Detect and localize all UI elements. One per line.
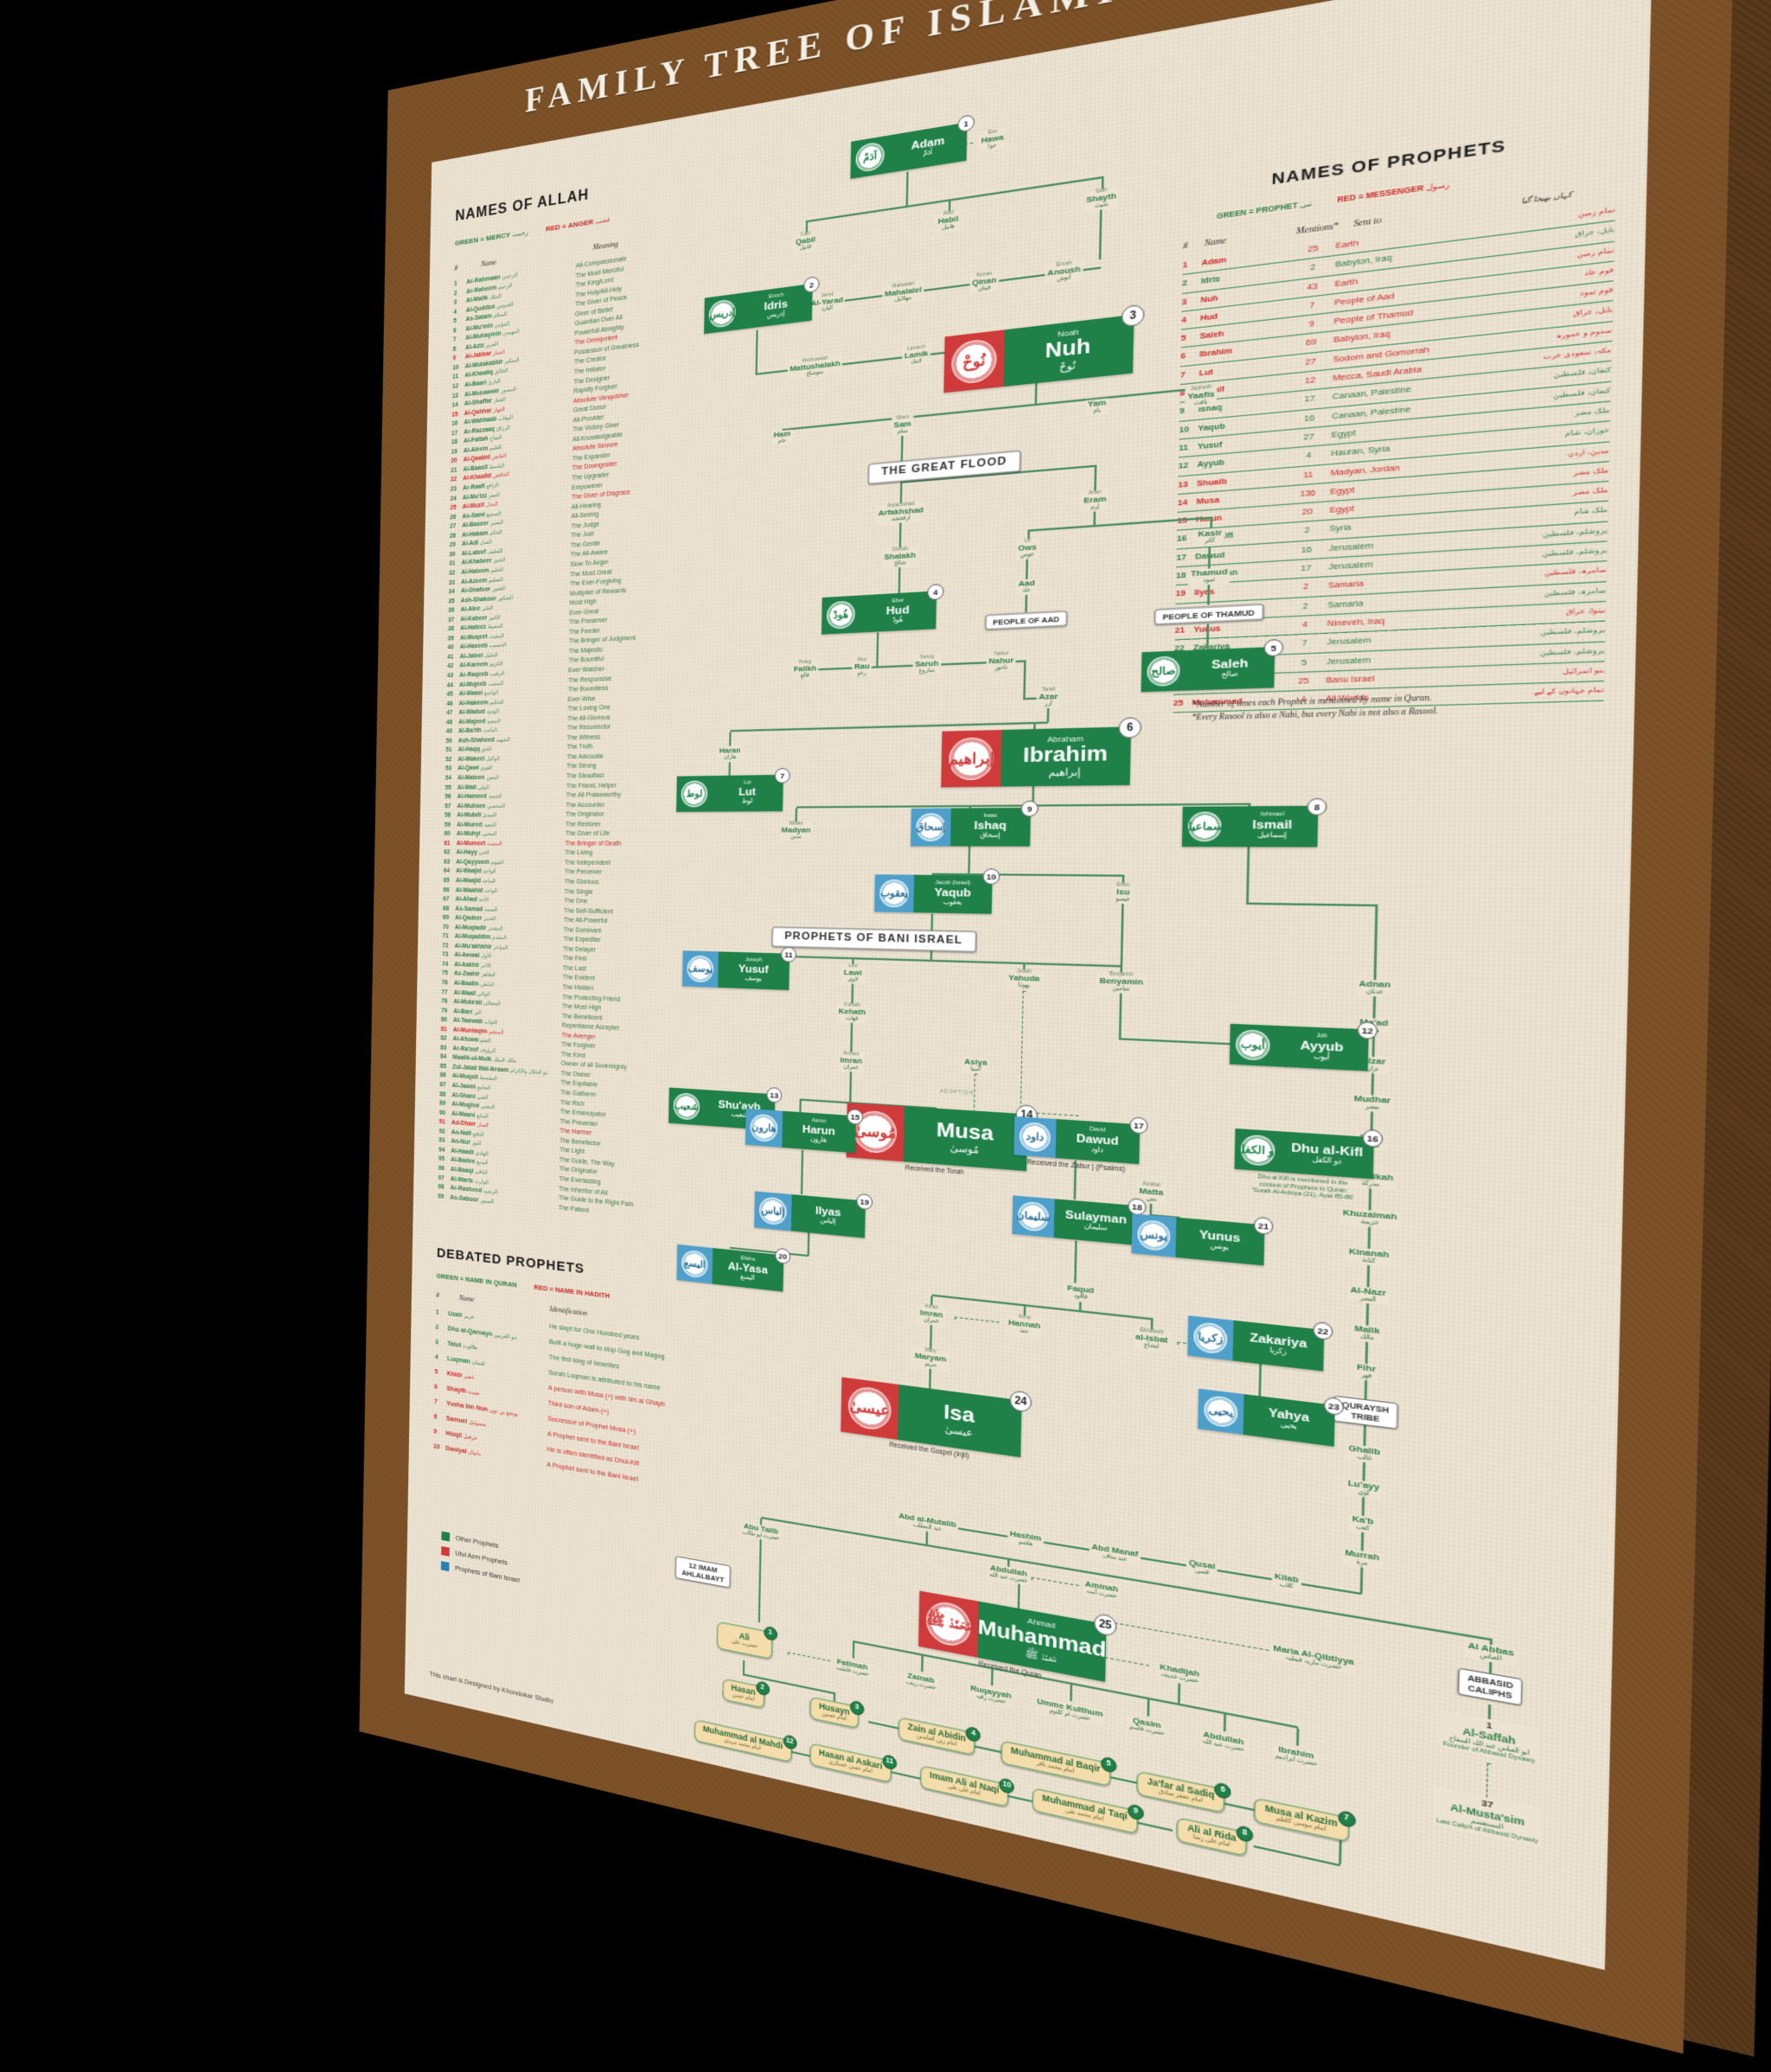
ornament-tile-icon: يعقوب <box>874 874 914 912</box>
names-of-prophets-legend: GREEN = PROPHET نبی RED = MESSENGER رسول <box>1217 181 1450 221</box>
person-malik: Malikمالك <box>1352 1324 1383 1343</box>
debated-col-ident: Identification <box>549 1305 587 1318</box>
ornament-tile-icon: يحيى <box>1198 1389 1244 1435</box>
tree-connector <box>876 633 879 667</box>
debated-prophets-heading: DEBATED PROPHETS <box>437 1245 585 1277</box>
designer-credit: This chart is Designed by Khondokar Stud… <box>429 1669 553 1704</box>
banner-abbasid: ABBASID CALIPHS <box>1458 1667 1523 1705</box>
tree-connector <box>1104 1657 1149 1668</box>
prophet-node-musa: مُوسیٰMusaمُوسیٰ14 <box>847 1103 1028 1171</box>
tree-connector <box>1208 547 1211 569</box>
tree-connector <box>1047 707 1050 723</box>
tree-connector <box>955 1317 1000 1325</box>
person-eram: AramEramإرم <box>1081 489 1109 512</box>
tree-connector <box>974 1073 978 1113</box>
names-of-allah-heading: NAMES OF ALLAH <box>455 187 589 225</box>
ornament-tile-icon: أيوب <box>1230 1024 1276 1066</box>
person-murrah: Murrahمرة <box>1342 1548 1382 1570</box>
person-kilab: Kilabكلاب <box>1272 1571 1301 1592</box>
tree-connector <box>1099 209 1103 259</box>
person-alisbat: Elizabethal-Isbatایشاع <box>1133 1327 1170 1353</box>
person-abdullah3: Abdullahحضرت عبد اللہ <box>1199 1730 1247 1755</box>
ornament-tile-icon: مُحَمَّدْ ﷺ <box>918 1591 979 1658</box>
prophet-number-badge: 8 <box>1307 798 1327 815</box>
tree-connector <box>898 566 901 593</box>
tree-connector <box>1023 662 1026 700</box>
tree-connector <box>1024 697 1037 700</box>
person-khadijah: Khadijahحضرت خدیجہ <box>1157 1662 1202 1685</box>
prophet-node-isa: عیسیٰIsaعیسیٰ24 <box>841 1377 1021 1457</box>
tree-connector <box>808 1232 810 1256</box>
tree-connector <box>1094 464 1096 493</box>
prophets-col-name: Name <box>1204 235 1226 247</box>
person-arfakhshad: ArpachshadArfakhshadأرفخشد <box>876 501 926 524</box>
color-legend: Other ProphetsUlul Azm ProphetsProphets … <box>441 1528 521 1589</box>
prophets-col-sent: Sent to <box>1353 215 1382 229</box>
tree-connector <box>1018 1583 1020 1609</box>
ornament-tile-icon: اليسع <box>677 1244 713 1284</box>
ornament-tile-icon: هُودْ <box>822 595 860 634</box>
tree-connector <box>1224 1714 1226 1731</box>
person-nahur: NahorNahurناحور <box>987 651 1016 673</box>
person-yaafis: JaphethYaafisيافث <box>1185 385 1218 409</box>
tree-connector <box>850 1020 853 1053</box>
banner-ahlalbayt: 12 IMAM AHLALBAYT <box>675 1556 732 1589</box>
person-kinanah: Kinanahكنانة <box>1346 1247 1392 1267</box>
person-sam: ShemSamسام <box>892 415 913 437</box>
ornament-tile-icon: شعيب <box>668 1088 705 1126</box>
imam-number-badge: 4 <box>966 1726 981 1743</box>
prophets-col-num: # <box>1183 240 1188 251</box>
prophet-number-badge: 7 <box>775 768 790 783</box>
tree-connector <box>991 1669 994 1685</box>
prophet-node-dawud: داودDavidDawudداود17 <box>1013 1116 1140 1164</box>
person-qusai: Qusaiقصي <box>1186 1557 1218 1578</box>
canvas-frame: FAMILY TREE OF ISLAMIC PROPHETS NAMES OF… <box>359 0 1736 2054</box>
ornament-tile-icon: آدَمْ <box>850 135 890 179</box>
person-ruqayyah: Ruqayyahحضرت رقیہ <box>968 1684 1013 1707</box>
person-thamud: Thamudثمود <box>1188 567 1231 585</box>
legend-swatch <box>441 1561 450 1571</box>
prophet-node-zakariya: زكرياZakariyaزكريا22 <box>1187 1315 1324 1371</box>
prophet-number-badge: 17 <box>1129 1116 1148 1135</box>
ornament-tile-icon: إسحاق <box>911 809 951 847</box>
prophet-node-dhulkifl: ذو الكفلDhu al-Kiflذو الكفل16 <box>1234 1129 1373 1180</box>
imam-number-badge: 12 <box>783 1734 796 1750</box>
person-alyarad: JaredAl-Yaradاليارد <box>809 291 845 315</box>
prophet-number-badge: 10 <box>982 868 1000 885</box>
banner-baniisrael: PROPHETS OF BANI ISRAEL <box>771 927 976 953</box>
prophets-col-mentions: Mentions* <box>1296 221 1339 236</box>
note-musa: Received the Torah <box>905 1165 964 1176</box>
product-photo-background: FAMILY TREE OF ISLAMIC PROPHETS NAMES OF… <box>0 0 1771 1771</box>
prophet-number-badge: 3 <box>1122 304 1145 327</box>
person-isu: EsauIsuعيسو <box>1113 883 1133 904</box>
imam-rida: Ali al Ridaامام علی رضا8 <box>1176 1817 1247 1858</box>
imam-number-badge: 2 <box>756 1680 770 1697</box>
ornament-tile-icon: زكريا <box>1187 1315 1233 1360</box>
prophet-node-ayyub: أيوبJobAyyubأيوب12 <box>1230 1024 1369 1071</box>
person-rau: ReuRauرعو <box>852 657 872 678</box>
tree-connector <box>1026 558 1028 579</box>
tree-connector <box>834 1694 835 1701</box>
tree-connector <box>1258 1364 1262 1396</box>
tree-connector <box>761 1517 1493 1641</box>
person-ows: UzOwsعوص <box>1016 538 1039 560</box>
person-alnazr: Al-Nazrالنضر <box>1347 1285 1389 1305</box>
person-abdmanaf: Abd Manafعبد مناف <box>1090 1542 1141 1565</box>
person-kasir: Kasirكاثر <box>1195 528 1224 546</box>
person-maryam: MaryMaryamمريم <box>912 1346 949 1371</box>
person-ham: Hamحام <box>771 430 792 446</box>
person-qasim: Qasimحضرت قاسم <box>1127 1715 1167 1738</box>
tree-connector <box>1020 991 1026 1114</box>
ornament-tile-icon: لوط <box>676 776 713 812</box>
person-lamik: LamechLamikلامك <box>902 344 930 368</box>
person-hannah: AnneHannahحنة <box>1006 1314 1043 1338</box>
tree-connector <box>1374 905 1378 980</box>
imam-number-badge: 9 <box>1128 1803 1144 1821</box>
tree-connector <box>921 1656 924 1672</box>
person-adnan: Adnanعدنان <box>1356 979 1393 996</box>
ornament-tile-icon: إسماعيل <box>1182 806 1228 847</box>
person-fatimah: Fatimahحضرت فاطمہ <box>834 1657 871 1679</box>
imam-taqi: Muhammad al Taqiامام محمد تقی9 <box>1032 1787 1138 1835</box>
tree-connector <box>1207 585 1210 604</box>
names-of-prophets-table: 1Adam25Earthتمام زمین2Idris2Babylon, Ira… <box>1173 201 1615 713</box>
person-kab: Ka'bكعب <box>1349 1514 1376 1534</box>
prophet-number-badge: 6 <box>1118 717 1141 739</box>
person-mahalalel: MahalalelMahalalelمهلائيل <box>882 280 924 305</box>
person-ummekulthum: Umme Kulthumحضرت ام کلثوم <box>1034 1697 1105 1725</box>
tree-connector <box>930 1324 932 1351</box>
tree-connector <box>1486 1762 1492 1798</box>
person-azar: TarahAzarآزر <box>1037 687 1061 708</box>
imam-number-badge: 1 <box>764 1626 777 1642</box>
person-zainab: Zainabحضرت زینب <box>904 1671 938 1692</box>
prophet-node-ishaq: إسحاقIsaacIshaqإسحاق9 <box>911 808 1031 847</box>
tree-connector <box>743 1660 745 1675</box>
tree-connector <box>1025 595 1027 612</box>
person-haran: Haranهاران <box>717 746 743 761</box>
ornament-tile-icon: إدريس <box>704 293 740 334</box>
tree-connector <box>968 847 970 875</box>
allah-col-num: # <box>454 264 457 272</box>
names-of-allah-list: 1Ar-Rahmaan الرحمنAll-Compassionate2Ar-R… <box>438 240 728 1228</box>
imam-naqi: Imam Ali al Naqiامام علی نقی10 <box>920 1765 1009 1808</box>
person-khuzaimah: Khuzaimahخزيمة <box>1339 1208 1399 1229</box>
caliph-saffah: 1Al-Saffahابو العباس عبد اللہ السفاحFoun… <box>1439 1710 1540 1767</box>
person-yam: Yamيام <box>1085 398 1109 415</box>
person-abdullah2: Abdullahحضرت عبد الله <box>987 1564 1030 1585</box>
prophet-node-nuh: نُوحْNoahNuhنُوحْ3 <box>943 315 1134 393</box>
imam-number-badge: 6 <box>1214 1781 1231 1800</box>
person-ibrahim2: Ibrahimحضرت ابراہیم <box>1273 1743 1320 1768</box>
person-anoush: EnoshAnoushأنوش <box>1045 259 1083 285</box>
ornament-tile-icon: عیسیٰ <box>841 1377 898 1439</box>
names-of-prophets-heading: NAMES OF PROPHETS <box>1271 137 1506 189</box>
person-saruh: SerugSaruhساروغ <box>912 655 941 675</box>
tree-connector <box>1070 1685 1072 1701</box>
tree-connector <box>729 732 732 746</box>
prophet-node-hud: هُودْEberHudهُودْ4 <box>822 591 937 634</box>
canvas-print: FAMILY TREE OF ISLAMIC PROPHETS NAMES OF… <box>359 0 1771 2072</box>
imam-number-badge: 11 <box>882 1754 897 1771</box>
label-adoption: ADOPTION <box>940 1088 974 1095</box>
legend-swatch <box>442 1531 451 1541</box>
ornament-tile-icon: سليمان <box>1012 1195 1054 1237</box>
imam-askari: Hasan al Askariامام حسن عسکری11 <box>809 1743 892 1783</box>
imam-hasan: Hasanامام حسن2 <box>722 1679 764 1710</box>
tree-connector <box>1093 510 1096 525</box>
person-yahuda: JudahYahudaيهوذا <box>1006 969 1041 990</box>
person-benyamin: BenjaminBenyaminبنيامين <box>1096 972 1145 994</box>
prophet-node-ilyas: إلياسIlyasإلياس19 <box>754 1191 866 1237</box>
person-qinan: KenanQinanقينان <box>969 271 999 295</box>
imam-number-badge: 7 <box>1338 1810 1356 1829</box>
prophet-node-adam: آدَمْAdamآدَمْ1 <box>850 122 967 178</box>
person-imran1: AmramImranعمران <box>838 1052 865 1072</box>
person-kehath: KohathKehathقهات <box>836 1002 868 1023</box>
tree-connector <box>1296 1728 1299 1745</box>
tree-connector <box>1489 1662 1492 1674</box>
ornament-tile-icon: نُوحْ <box>943 329 1004 393</box>
tree-connector <box>755 330 758 374</box>
tree-connector <box>849 1070 852 1103</box>
allah-col-name: Name <box>481 258 496 268</box>
tree-connector <box>1210 516 1212 528</box>
prophet-number-badge: 1 <box>957 114 975 133</box>
ornament-tile-icon: إلياس <box>754 1191 791 1231</box>
tree-connector <box>929 1367 931 1390</box>
person-fihr: Fihrفهر <box>1354 1362 1379 1381</box>
prophet-number-badge: 13 <box>766 1087 782 1103</box>
person-mattushalakh: MethuselahMattushalakhمتوشلخ <box>788 355 843 381</box>
prophet-node-ibrahim: إبراهيمAbrahamIbrahimإبراهيم6 <box>941 726 1131 787</box>
imam-kazim: Musa al Kazimامام موسی کاظم7 <box>1254 1798 1349 1843</box>
person-aad: Aadعاد <box>1016 579 1038 595</box>
banner-aadbanner: PEOPLE OF AAD <box>985 611 1067 630</box>
tree-connector <box>853 1642 855 1658</box>
tree-connector <box>1246 903 1378 907</box>
person-falikh: PelegFalikhفالغ <box>791 660 818 681</box>
poster-sheet: NAMES OF ALLAH GREEN = MERCY رحمت RED = … <box>405 0 1653 1970</box>
imam-mahdi: Muhammad al Mahdiامام محمد مہدی12 <box>694 1719 792 1763</box>
prophet-number-badge: 9 <box>1020 801 1039 817</box>
prophets-col-sent-ur: کہاں بھیجا گیا <box>1521 190 1572 206</box>
person-luayy: Lu'ayyلؤي <box>1345 1479 1382 1500</box>
tree-connector <box>1291 1582 1361 1596</box>
person-asiya: Asiyaآسيا <box>962 1058 989 1074</box>
allah-col-meaning: Meaning <box>592 240 618 252</box>
prophet-node-yusuf: يوسفJosephYusufيوسف11 <box>682 950 790 990</box>
tree-connector <box>1246 847 1250 902</box>
tree-connector <box>1178 1683 1180 1704</box>
prophet-node-yaqub: يعقوبJacob (Israel)Yaqubيعقوب10 <box>874 874 993 914</box>
prophet-number-badge: 4 <box>927 584 944 601</box>
prophet-node-lut: لوطLotLutلوط7 <box>676 775 783 812</box>
imam-sadiq: Ja'far al Sadiqامام جعفر صادق6 <box>1136 1771 1225 1814</box>
ornament-tile-icon: صالح <box>1141 650 1186 692</box>
note-dhulkifl: Dhu al Kifl is mentioned in thecontext o… <box>1252 1173 1354 1203</box>
prophet-node-yahya: يحيىYahyaيحيى23 <box>1198 1389 1335 1447</box>
imam-ali: Aliحضرت علی1 <box>717 1621 772 1660</box>
ornament-tile-icon: داود <box>1013 1116 1056 1158</box>
banner-quraysh: QURAYSH TRIBE <box>1333 1395 1397 1429</box>
person-ghalib: Ghalibغالب <box>1346 1443 1383 1464</box>
person-madyan: MidianMadyanمدين <box>779 822 813 841</box>
tree-connector <box>1103 1621 1282 1655</box>
tree-connector <box>1119 902 1124 1039</box>
imam-number-badge: 3 <box>849 1700 864 1717</box>
tree-connector <box>801 1150 803 1194</box>
tree-connector <box>758 1538 762 1622</box>
prophet-node-ismail: إسماعيلIshmaelIsmailإسماعيل8 <box>1182 806 1319 847</box>
imam-number-badge: 8 <box>1237 1825 1254 1843</box>
person-shalakh: ShelahShalakhشالخ <box>882 547 918 569</box>
ornament-tile-icon: يوسف <box>682 950 719 988</box>
tree-connector <box>868 1721 902 1730</box>
tree-connector <box>783 387 1203 432</box>
prophet-number-badge: 2 <box>803 276 820 293</box>
prophet-node-yunus: يونسYunusيونس21 <box>1131 1213 1264 1265</box>
tree-connector <box>1119 1038 1231 1045</box>
imam-number-badge: 10 <box>999 1777 1014 1794</box>
person-maria: Maria Al-Qibtiyyaحضرت ماریہ قبطیہ <box>1270 1643 1357 1674</box>
person-hawa: EveHawaحوا <box>979 128 1006 152</box>
allah-name-row: 60Al-Muhyi المحييThe Giver of Life <box>444 830 718 841</box>
tree-connector <box>1488 1704 1491 1719</box>
person-lawi: LeviLawiلاوي <box>841 964 864 984</box>
imam-zain: Zain al Abidinامام زین العابدین4 <box>898 1717 976 1756</box>
ornament-tile-icon: ذو الكفل <box>1234 1129 1281 1173</box>
imam-baqir: Muhammad al Baqirامام محمد باقر5 <box>1001 1740 1110 1787</box>
prophet-node-harun: هارونAaronHarunهارون15 <box>745 1109 856 1153</box>
tree-connector <box>728 762 731 776</box>
tree-connector <box>1360 1569 1364 1595</box>
person-habil: AbelHabilهابيل <box>936 209 961 233</box>
prophet-node-sulayman: سليمانSulaymanسليمان18 <box>1012 1195 1138 1245</box>
person-faqud: Faqudفاقود <box>1065 1283 1096 1301</box>
debated-prophets-list: 1Uzair عزیرHe slept for One Hundred year… <box>433 1305 755 1506</box>
imam-husayn: Husaynامام حسین3 <box>809 1697 859 1730</box>
tree-connector <box>931 1295 1153 1321</box>
person-imran2: ImranImranعمران <box>917 1304 945 1327</box>
person-qabil: CainQabilقابيل <box>794 231 818 253</box>
ornament-tile-icon: يونس <box>1131 1213 1176 1257</box>
tree-connector <box>1074 1241 1077 1283</box>
tree-connector <box>1254 1845 1340 1867</box>
tree-connector <box>788 1652 830 1663</box>
person-mudhar: Mudharمضر <box>1351 1094 1393 1112</box>
person-aminah: Aminahحضرت آمنہ <box>1083 1579 1121 1601</box>
debated-col-num: # <box>436 1291 439 1300</box>
person-shayth: SethShaythشيث <box>1084 187 1119 213</box>
ornament-tile-icon: إبراهيم <box>941 730 1001 787</box>
legend-swatch <box>441 1545 450 1556</box>
tree-connector <box>1147 1699 1149 1717</box>
tree-connector <box>1035 383 1038 404</box>
tree-connector <box>1032 1577 1079 1589</box>
ornament-tile-icon: هارون <box>745 1109 783 1148</box>
debated-col-name: Name <box>459 1294 475 1303</box>
allah-name-row: 59Al-Mueed المعيدThe Restorer <box>444 820 718 830</box>
tree-connector <box>906 172 909 206</box>
prophet-node-saleh: صالحSalehصالح5 <box>1141 647 1275 692</box>
prophet-number-badge: 11 <box>781 947 796 962</box>
person-hashim: Hashimهاشم <box>1007 1529 1044 1550</box>
